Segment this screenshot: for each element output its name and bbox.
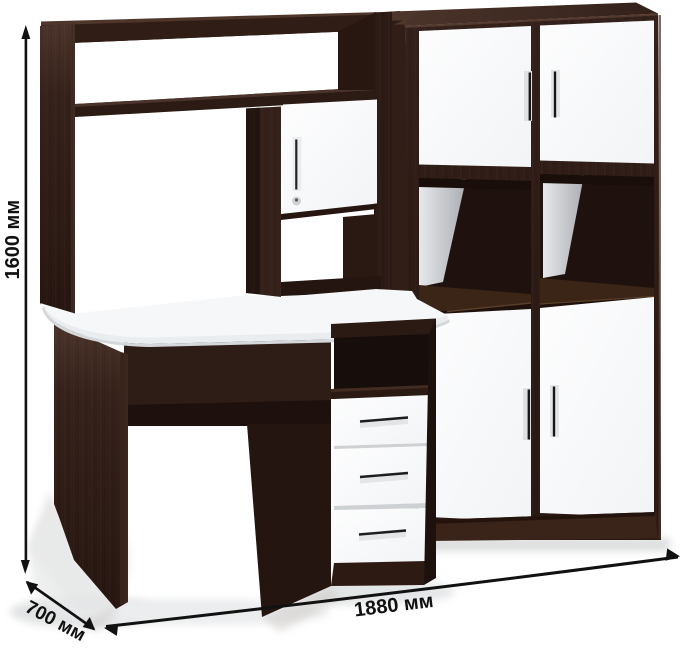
svg-text:1600 мм: 1600 мм [2,200,24,280]
